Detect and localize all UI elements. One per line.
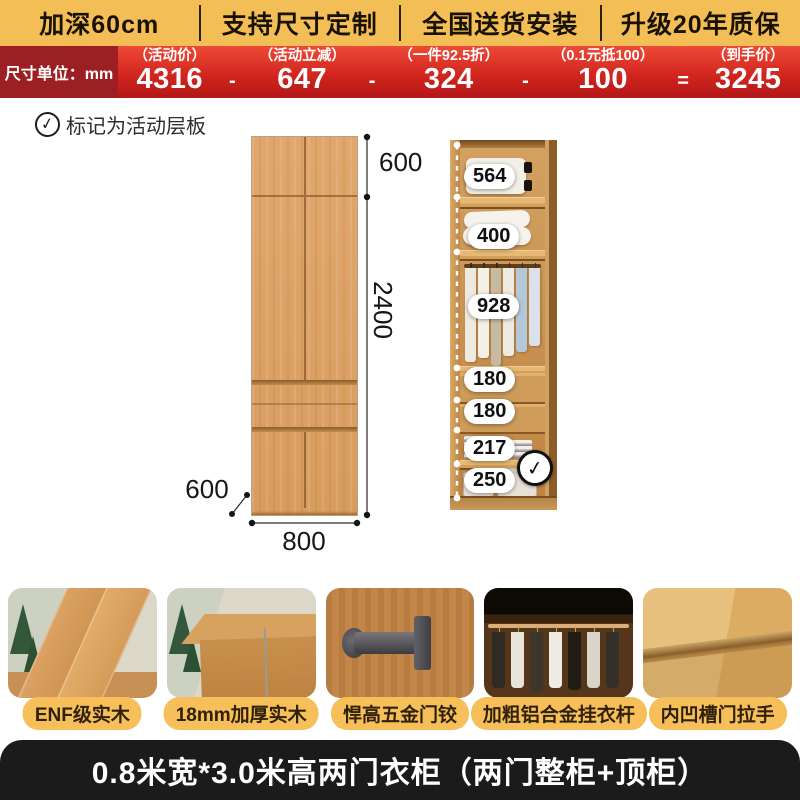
wardrobe-front-view — [252, 137, 357, 515]
minus-operator: - — [369, 70, 376, 93]
checkmark-icon: ✓ — [33, 110, 62, 139]
section-label: 217 — [464, 436, 515, 461]
hanging-garment — [568, 632, 581, 690]
promo-item-delivery: 全国送货安装 — [401, 0, 600, 46]
dimension-lines: 600 2400 800 600 — [0, 98, 800, 588]
door-gap-line — [304, 197, 306, 380]
hanging-garment — [530, 632, 543, 692]
price-value: 100 — [578, 64, 628, 95]
hinge-plate — [414, 616, 431, 670]
price-tag: （一件92.5折） — [398, 49, 499, 65]
price-tag: （活动价） — [134, 49, 207, 65]
price-group-discount: （活动立减） 647 — [259, 49, 346, 96]
legend-text: 标记为活动层板 — [66, 110, 206, 139]
price-tag: （活动立减） — [259, 49, 346, 65]
garment — [529, 268, 540, 346]
hanging-garment — [492, 632, 505, 688]
feature-image-hinge — [326, 588, 475, 698]
shelf — [460, 197, 545, 209]
equals-operator: = — [677, 70, 689, 93]
dim-depth: 600 — [185, 474, 228, 504]
price-formula: （活动价） 4316 - （活动立减） 647 - （一件92.5折） 324 … — [118, 46, 800, 98]
section-label: 928 — [468, 294, 519, 319]
hanging-garment — [587, 632, 600, 688]
dim-top-cabinet-height: 600 — [379, 147, 422, 177]
price-group-coupon: （0.1元抵100） 100 — [552, 49, 654, 96]
wood-panel-front — [200, 636, 316, 698]
cabinet-base-panel — [450, 496, 557, 510]
drawer-seam — [252, 403, 357, 405]
feature-hinge: 悍高五金门铰 — [326, 588, 475, 728]
feature-label: ENF级实木 — [23, 697, 142, 730]
price-value: 324 — [424, 64, 474, 95]
promo-item-depth: 加深60cm — [0, 0, 199, 46]
promo-bar: 加深60cm 支持尺寸定制 全国送货安装 升级20年质保 — [0, 0, 800, 46]
product-title-bar: 0.8米宽*3.0米高两门衣柜（两门整柜+顶柜） — [0, 740, 800, 800]
price-value: 647 — [277, 64, 327, 95]
price-group-final: （到手价） 3245 — [712, 49, 785, 96]
minus-operator: - — [522, 70, 529, 93]
price-tag: （到手价） — [712, 49, 785, 65]
feature-image-thick-wood — [167, 588, 316, 698]
hanging-garment — [511, 632, 524, 688]
feature-image-enf-wood — [8, 588, 157, 698]
plinth-shadow — [252, 511, 357, 515]
feature-label: 18mm加厚实木 — [164, 697, 319, 730]
diagram-area: ✓ 标记为活动层板 — [0, 98, 800, 588]
handle-groove — [252, 380, 357, 385]
price-group-percent-off: （一件92.5折） 324 — [398, 49, 499, 96]
dim-body-height: 2400 — [368, 281, 398, 339]
feature-label: 悍高五金门铰 — [331, 697, 469, 730]
section-label: 564 — [464, 164, 515, 189]
product-title: 0.8米宽*3.0米高两门衣柜（两门整柜+顶柜） — [92, 748, 709, 792]
promo-item-custom-size: 支持尺寸定制 — [201, 0, 400, 46]
feature-label: 内凹槽门拉手 — [649, 697, 787, 730]
price-value: 4316 — [136, 64, 203, 95]
minus-operator: - — [229, 70, 236, 93]
price-group-activity: （活动价） 4316 — [134, 49, 207, 96]
promo-item-warranty: 升级20年质保 — [602, 0, 800, 46]
section-label: 400 — [468, 224, 519, 249]
section-label: 180 — [464, 399, 515, 424]
section-label: 180 — [464, 367, 515, 392]
price-bar: 尺寸单位：mm （活动价） 4316 - （活动立减） 647 - （一件92.… — [0, 46, 800, 98]
feature-strip: ENF级实木 18mm加厚实木 悍高五金门铰 加粗铝合金 — [0, 588, 800, 728]
movable-shelf-legend: ✓ 标记为活动层板 — [35, 110, 206, 139]
door-gap-line — [304, 432, 306, 508]
shelf — [460, 250, 545, 261]
hinge-arm — [354, 632, 420, 654]
hanging-garment — [549, 632, 562, 688]
cabinet-left-panel — [450, 140, 460, 510]
cabinet-top-panel — [450, 140, 557, 148]
feature-hanging-rod: 加粗铝合金挂衣杆 — [484, 588, 633, 728]
feature-image-hanging-rod — [484, 588, 633, 698]
section-label: 250 — [464, 468, 515, 493]
feature-thick-wood: 18mm加厚实木 — [167, 588, 316, 728]
feature-image-recessed-handle — [643, 588, 792, 698]
door-gap-line — [304, 137, 306, 195]
hanging-garment — [606, 632, 619, 688]
dim-width: 800 — [282, 526, 325, 556]
feature-label: 加粗铝合金挂衣杆 — [471, 697, 647, 730]
unit-label: 尺寸单位：mm — [0, 46, 118, 98]
price-value: 3245 — [715, 64, 782, 95]
feature-enf-wood: ENF级实木 — [8, 588, 157, 728]
clothes-rod — [488, 624, 629, 628]
price-tag: （0.1元抵100） — [552, 49, 654, 65]
feature-recessed-handle: 内凹槽门拉手 — [643, 588, 792, 728]
